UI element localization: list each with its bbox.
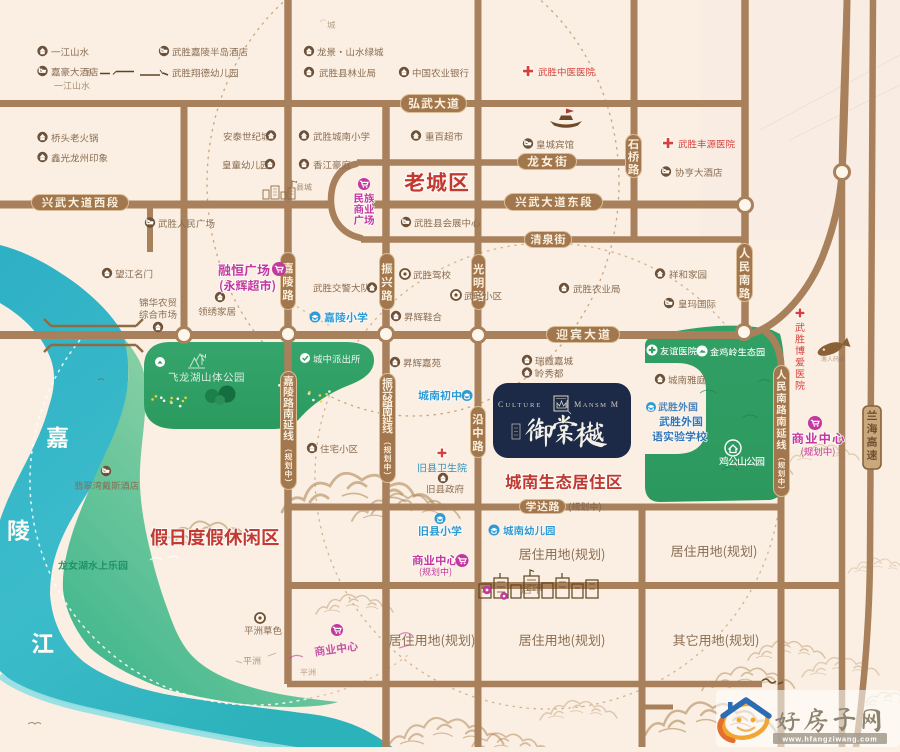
svg-text:MANSM M: MANSM M	[574, 400, 619, 409]
svg-text:www.hfangziwang.com: www.hfangziwang.com	[781, 735, 877, 744]
svg-text:CULTURE: CULTURE	[498, 400, 542, 409]
